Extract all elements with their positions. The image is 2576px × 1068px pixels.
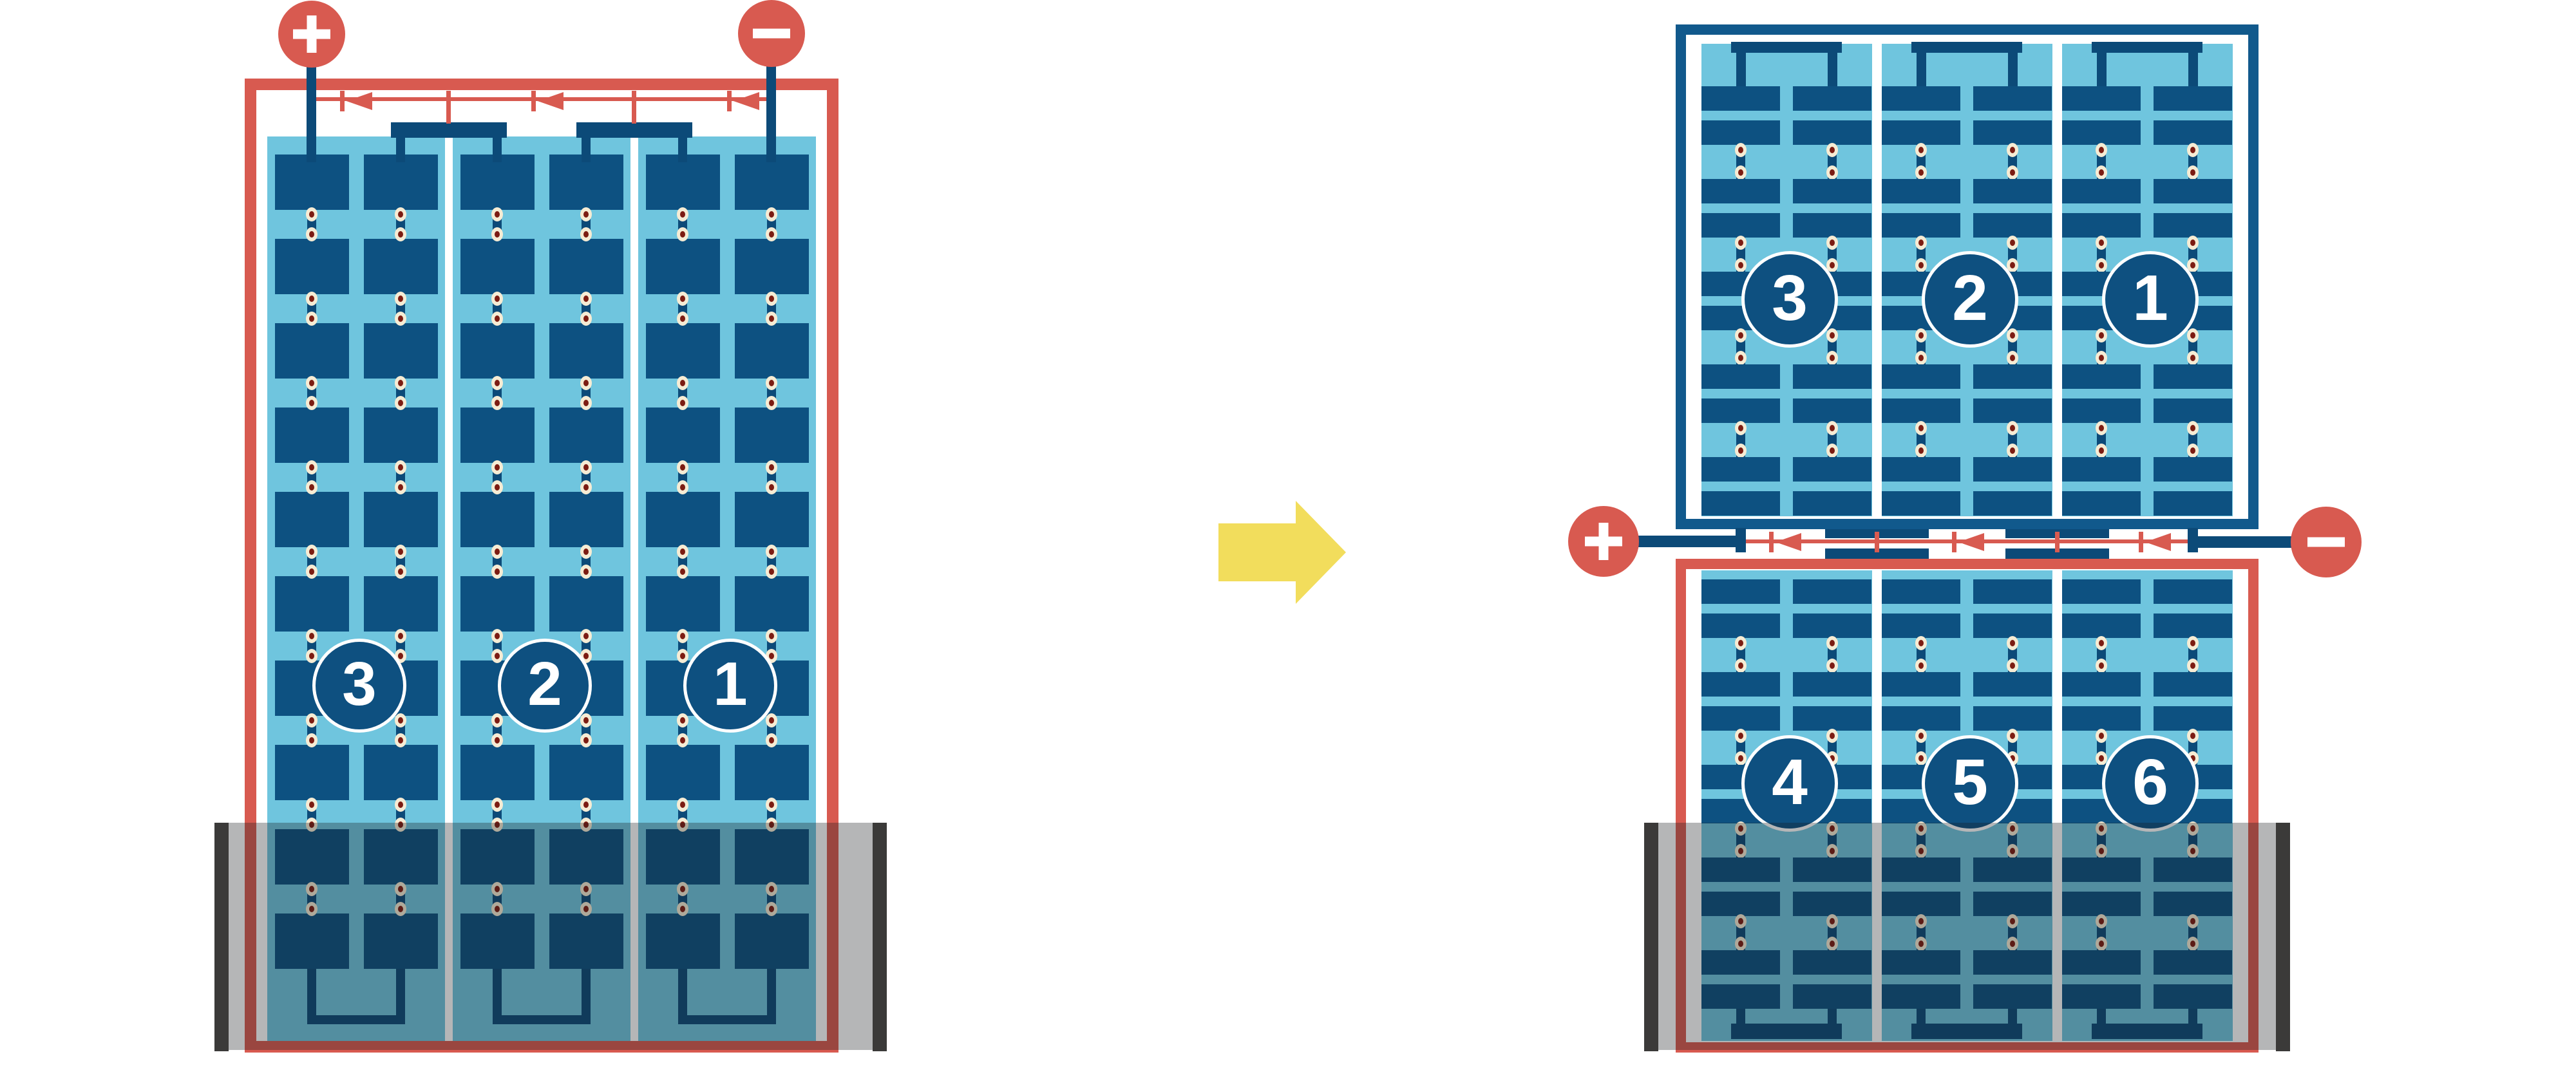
- solder-dot: [491, 227, 503, 241]
- solar-cell: [1973, 179, 2052, 203]
- solder-dot: [1735, 421, 1747, 435]
- solar-cell: [460, 576, 535, 632]
- solder-dot: [1735, 165, 1747, 180]
- solar-cell: [1701, 579, 1780, 604]
- solar-cell: [1973, 364, 2052, 389]
- solder-dot: [306, 460, 317, 474]
- solder-dot: [677, 207, 688, 221]
- bypass-diode-icon: [531, 91, 573, 111]
- solder-dot: [1915, 236, 1927, 250]
- solar-cell: [275, 155, 349, 210]
- bridge-leg: [396, 138, 405, 162]
- solar-cell: [2154, 672, 2232, 697]
- negative-terminal-wire: [2195, 536, 2298, 548]
- solder-dot: [2187, 421, 2199, 435]
- solder-dot: [1826, 351, 1838, 365]
- string-number-circle: 1: [683, 639, 777, 733]
- solder-dot: [491, 376, 503, 390]
- solder-dot: [580, 629, 592, 643]
- solar-cell: [2062, 579, 2141, 604]
- solder-dot: [2096, 729, 2107, 743]
- bus-junction-tick: [2055, 532, 2060, 552]
- negative-terminal minus-icon: [738, 0, 805, 67]
- solder-dot: [2007, 729, 2018, 743]
- solar-cell: [364, 239, 438, 294]
- solder-dot: [395, 227, 406, 241]
- solder-dot: [2007, 421, 2018, 435]
- water-container-wall: [873, 823, 887, 1051]
- solar-cell: [364, 492, 438, 547]
- solar-cell: [1882, 179, 1960, 203]
- solar-cell: [2062, 398, 2141, 423]
- water-container-wall: [1644, 823, 1658, 1051]
- solder-dot: [1735, 258, 1747, 272]
- arrow-right-icon-head: [1296, 501, 1346, 604]
- solder-dot: [1826, 165, 1838, 180]
- positive-terminal-wire: [307, 66, 316, 162]
- solder-dot: [2187, 444, 2199, 458]
- solar-cell: [460, 492, 535, 547]
- solder-dot: [306, 545, 317, 559]
- solder-dot: [395, 480, 406, 494]
- solder-dot: [766, 460, 777, 474]
- string-top-leg: [1917, 53, 1926, 86]
- solar-cell: [1882, 213, 1960, 238]
- solar-cell: [275, 239, 349, 294]
- solder-dot: [306, 376, 317, 390]
- solar-cell: [1701, 364, 1780, 389]
- solar-cell: [735, 576, 809, 632]
- solder-dot: [2007, 236, 2018, 250]
- solar-cell: [549, 239, 623, 294]
- solder-dot: [395, 629, 406, 643]
- solar-cell: [275, 408, 349, 463]
- bypass-diode-icon: [1769, 532, 1810, 552]
- arrow-right-icon: [1218, 523, 1296, 581]
- water-container-wall: [2276, 823, 2290, 1051]
- solar-cell: [2154, 179, 2232, 203]
- solder-dot: [1826, 729, 1838, 743]
- solar-cell: [1701, 179, 1780, 203]
- solar-cell: [1882, 457, 1960, 482]
- solar-cell: [1793, 457, 1871, 482]
- solder-dot: [2187, 351, 2199, 365]
- solar-cell: [646, 239, 720, 294]
- solder-dot: [2096, 165, 2107, 180]
- solder-dot: [1735, 351, 1747, 365]
- solar-cell: [1973, 213, 2052, 238]
- string-top-connector: [1911, 42, 2022, 53]
- solder-dot: [395, 798, 406, 812]
- solder-dot: [766, 733, 777, 747]
- solder-dot: [491, 312, 503, 326]
- bridge-leg: [582, 138, 591, 162]
- solder-dot: [306, 798, 317, 812]
- solar-cell: [2154, 457, 2232, 482]
- solar-cell: [549, 155, 623, 210]
- solder-dot: [491, 733, 503, 747]
- solder-dot: [677, 649, 688, 663]
- solar-cell: [2154, 120, 2232, 145]
- solar-cell: [2062, 179, 2141, 203]
- solder-dot: [1915, 143, 1927, 157]
- string-number: 3: [342, 649, 376, 720]
- solar-cell: [1793, 706, 1871, 731]
- solar-cell: [735, 239, 809, 294]
- solar-cell: [1973, 706, 2052, 731]
- solar-cell: [1882, 398, 1960, 423]
- string-top-leg: [2097, 53, 2107, 86]
- solar-cell: [549, 323, 623, 379]
- solder-dot: [1826, 143, 1838, 157]
- solder-dot: [766, 396, 777, 410]
- solar-cell: [2154, 213, 2232, 238]
- solder-dot: [491, 396, 503, 410]
- solder-dot: [2096, 258, 2107, 272]
- solder-dot: [491, 649, 503, 663]
- solder-dot: [2187, 143, 2199, 157]
- solder-dot: [580, 227, 592, 241]
- solder-dot: [395, 376, 406, 390]
- solar-cell: [1793, 213, 1871, 238]
- pv-module-flood-diagram: 321 321 456: [0, 0, 2576, 1068]
- bridge-leg: [493, 138, 502, 162]
- solder-dot: [1915, 636, 1927, 650]
- solar-cell: [646, 745, 720, 800]
- solder-dot: [677, 629, 688, 643]
- solar-cell: [2062, 491, 2141, 516]
- solder-dot: [306, 292, 317, 306]
- solder-dot: [2187, 659, 2199, 673]
- solder-dot: [1915, 751, 1927, 765]
- solar-cell: [2154, 491, 2232, 516]
- solder-dot: [395, 713, 406, 727]
- solder-dot: [1826, 659, 1838, 673]
- solar-cell: [2154, 579, 2232, 604]
- negative-terminal-wire: [766, 66, 776, 162]
- solder-dot: [491, 545, 503, 559]
- string-number: 5: [1952, 745, 1988, 820]
- string-number: 4: [1772, 745, 1808, 820]
- solder-dot: [766, 565, 777, 579]
- solar-cell: [2062, 457, 2141, 482]
- solar-cell: [1701, 614, 1780, 638]
- solder-dot: [1735, 636, 1747, 650]
- solder-dot: [491, 713, 503, 727]
- solder-dot: [580, 480, 592, 494]
- solder-dot: [2096, 751, 2107, 765]
- solder-dot: [491, 798, 503, 812]
- solder-dot: [2096, 659, 2107, 673]
- solder-dot: [677, 733, 688, 747]
- solder-dot: [580, 396, 592, 410]
- solder-dot: [306, 565, 317, 579]
- string-top-connector: [1731, 42, 1842, 53]
- pv-panel-upper: 321: [1701, 44, 2233, 516]
- solder-dot: [766, 713, 777, 727]
- solder-dot: [306, 649, 317, 663]
- string-number: 3: [1772, 261, 1808, 335]
- solar-cell: [2062, 120, 2141, 145]
- solder-dot: [677, 565, 688, 579]
- solder-dot: [2187, 236, 2199, 250]
- string-top-leg: [1828, 53, 1837, 86]
- solder-dot: [580, 376, 592, 390]
- string-top-leg: [2188, 53, 2198, 86]
- solder-dot: [395, 292, 406, 306]
- solder-dot: [1915, 729, 1927, 743]
- solder-dot: [306, 733, 317, 747]
- solar-cell: [364, 155, 438, 210]
- solar-cell: [646, 323, 720, 379]
- solar-cell: [1793, 614, 1871, 638]
- solar-cell: [1793, 120, 1871, 145]
- solder-dot: [1735, 236, 1747, 250]
- string-number-circle: 2: [498, 639, 592, 733]
- solder-dot: [2007, 444, 2018, 458]
- solder-dot: [1735, 729, 1747, 743]
- solar-cell: [1882, 491, 1960, 516]
- solar-cell: [646, 576, 720, 632]
- solder-dot: [766, 629, 777, 643]
- solar-cell: [1882, 86, 1960, 111]
- solder-dot: [306, 713, 317, 727]
- solar-cell: [735, 492, 809, 547]
- solder-dot: [1915, 165, 1927, 180]
- solder-dot: [580, 207, 592, 221]
- solar-cell: [1973, 672, 2052, 697]
- bypass-diode-icon: [2139, 532, 2180, 552]
- solar-cell: [646, 492, 720, 547]
- solder-dot: [677, 292, 688, 306]
- solder-dot: [677, 227, 688, 241]
- solder-dot: [580, 460, 592, 474]
- solar-cell: [2062, 213, 2141, 238]
- solder-dot: [2187, 729, 2199, 743]
- solar-cell: [1793, 491, 1871, 516]
- solar-cell: [364, 745, 438, 800]
- solar-cell: [735, 155, 809, 210]
- solder-dot: [306, 227, 317, 241]
- solder-dot: [306, 480, 317, 494]
- solder-dot: [766, 312, 777, 326]
- string-number: 1: [2132, 261, 2168, 335]
- solar-cell: [2154, 706, 2232, 731]
- water-container-wall: [214, 823, 229, 1051]
- solder-dot: [580, 798, 592, 812]
- solder-dot: [395, 733, 406, 747]
- solar-cell: [1882, 579, 1960, 604]
- solar-cell: [1882, 120, 1960, 145]
- solder-dot: [2007, 165, 2018, 180]
- solar-cell: [1701, 672, 1780, 697]
- solder-dot: [395, 460, 406, 474]
- solder-dot: [306, 312, 317, 326]
- string-number: 2: [527, 649, 562, 720]
- solar-cell: [1793, 86, 1871, 111]
- solder-dot: [306, 207, 317, 221]
- solar-cell: [1882, 364, 1960, 389]
- solar-cell: [1973, 457, 2052, 482]
- solar-cell: [735, 408, 809, 463]
- solder-dot: [2096, 444, 2107, 458]
- solder-dot: [580, 733, 592, 747]
- solar-cell: [549, 492, 623, 547]
- solar-cell: [1973, 398, 2052, 423]
- solder-dot: [1915, 328, 1927, 342]
- solder-dot: [1735, 143, 1747, 157]
- string-bridge-connector: [576, 122, 692, 138]
- solar-cell: [1793, 398, 1871, 423]
- solar-cell: [1701, 213, 1780, 238]
- string-top-leg: [1736, 53, 1746, 86]
- solder-dot: [580, 713, 592, 727]
- solder-dot: [580, 312, 592, 326]
- solar-cell: [1973, 491, 2052, 516]
- solar-cell: [2062, 364, 2141, 389]
- solder-dot: [2096, 351, 2107, 365]
- solder-dot: [491, 292, 503, 306]
- solder-dot: [2096, 421, 2107, 435]
- negative-terminal minus-icon: [2291, 507, 2362, 577]
- solder-dot: [395, 565, 406, 579]
- bypass-diode-icon: [727, 91, 768, 111]
- solar-cell: [460, 745, 535, 800]
- solar-cell: [2154, 86, 2232, 111]
- string-bridge-connector: [391, 122, 507, 138]
- solar-cell: [1793, 364, 1871, 389]
- solder-dot: [677, 312, 688, 326]
- solar-cell: [1882, 614, 1960, 638]
- solder-dot: [677, 480, 688, 494]
- solder-dot: [2007, 659, 2018, 673]
- solar-cell: [1882, 672, 1960, 697]
- bypass-diode-icon: [340, 91, 381, 111]
- flood-water-overlay: [1658, 823, 2276, 1050]
- solder-dot: [766, 292, 777, 306]
- solder-dot: [580, 292, 592, 306]
- solder-dot: [2007, 636, 2018, 650]
- solar-cell: [275, 492, 349, 547]
- bridge-leg: [678, 138, 687, 162]
- solder-dot: [580, 545, 592, 559]
- solar-cell: [1701, 491, 1780, 516]
- solder-dot: [2187, 636, 2199, 650]
- solar-cell: [1701, 120, 1780, 145]
- string-number-circle: 5: [1922, 735, 2018, 832]
- bus-junction-tick: [632, 91, 636, 124]
- solar-cell: [1973, 120, 2052, 145]
- cell-string: 3: [1701, 44, 1872, 516]
- solder-dot: [1826, 421, 1838, 435]
- solder-dot: [766, 480, 777, 494]
- solar-cell: [549, 745, 623, 800]
- solar-cell: [549, 576, 623, 632]
- solder-dot: [766, 798, 777, 812]
- solar-cell: [2062, 86, 2141, 111]
- solder-dot: [395, 545, 406, 559]
- solder-dot: [1826, 236, 1838, 250]
- solder-dot: [1735, 328, 1747, 342]
- solar-cell: [364, 323, 438, 379]
- solder-dot: [1915, 351, 1927, 365]
- solder-dot: [2096, 328, 2107, 342]
- cell-string: 2: [1882, 44, 2052, 516]
- solar-cell: [1793, 579, 1871, 604]
- solar-cell: [2154, 364, 2232, 389]
- solder-dot: [766, 207, 777, 221]
- solder-dot: [1826, 636, 1838, 650]
- solder-dot: [677, 545, 688, 559]
- solar-cell: [275, 576, 349, 632]
- solar-cell: [1701, 398, 1780, 423]
- solar-cell: [460, 155, 535, 210]
- string-number: 1: [713, 649, 747, 720]
- solder-dot: [2007, 328, 2018, 342]
- solder-dot: [766, 227, 777, 241]
- solar-cell: [646, 155, 720, 210]
- string-number-circle: 1: [2102, 251, 2199, 348]
- solar-cell: [275, 323, 349, 379]
- solder-dot: [395, 312, 406, 326]
- solder-dot: [491, 207, 503, 221]
- solder-dot: [306, 396, 317, 410]
- solder-dot: [2096, 236, 2107, 250]
- solder-dot: [306, 629, 317, 643]
- string-number-circle: 4: [1741, 735, 1838, 832]
- solar-cell: [1793, 672, 1871, 697]
- string-number-circle: 3: [1741, 251, 1838, 348]
- solar-cell: [1882, 706, 1960, 731]
- solar-cell: [1701, 706, 1780, 731]
- solar-cell: [2154, 398, 2232, 423]
- string-number: 6: [2132, 745, 2168, 820]
- solar-cell: [460, 323, 535, 379]
- solar-cell: [2062, 706, 2141, 731]
- solder-dot: [491, 460, 503, 474]
- solder-dot: [491, 480, 503, 494]
- string-number: 2: [1952, 261, 1988, 335]
- solar-cell: [364, 576, 438, 632]
- solder-dot: [677, 798, 688, 812]
- solder-dot: [1826, 444, 1838, 458]
- bus-junction-tick: [1875, 532, 1879, 552]
- solder-dot: [2096, 143, 2107, 157]
- solar-cell: [1701, 457, 1780, 482]
- solder-dot: [2007, 351, 2018, 365]
- cell-string: 1: [2062, 44, 2233, 516]
- solder-dot: [1735, 444, 1747, 458]
- solder-dot: [2007, 143, 2018, 157]
- solder-dot: [491, 629, 503, 643]
- solar-cell: [646, 408, 720, 463]
- solder-dot: [2187, 165, 2199, 180]
- bypass-diode-icon: [1952, 532, 1993, 552]
- solar-cell: [1701, 86, 1780, 111]
- solar-cell: [460, 239, 535, 294]
- solar-cell: [1973, 86, 2052, 111]
- solder-dot: [1915, 659, 1927, 673]
- solar-cell: [1973, 614, 2052, 638]
- positive-terminal-wire: [1636, 536, 1739, 547]
- solder-dot: [1735, 751, 1747, 765]
- string-number-circle: 6: [2102, 735, 2199, 832]
- solder-dot: [677, 396, 688, 410]
- solar-cell: [735, 745, 809, 800]
- solar-cell: [460, 408, 535, 463]
- solar-cell: [275, 745, 349, 800]
- solar-cell: [735, 323, 809, 379]
